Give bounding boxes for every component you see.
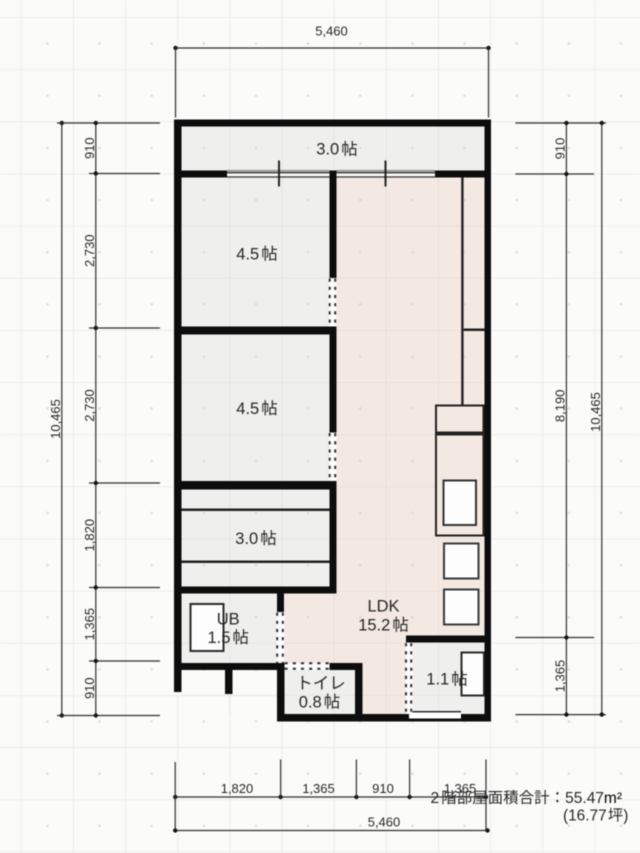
svg-text:(16.77: (16.77 — [563, 808, 607, 825]
svg-text:5,460: 5,460 — [315, 24, 348, 39]
svg-text:4.5: 4.5 — [236, 246, 259, 264]
svg-text:1,365: 1,365 — [82, 608, 97, 641]
svg-text:4.5: 4.5 — [236, 400, 259, 418]
svg-text:1,365: 1,365 — [553, 660, 568, 693]
svg-text:2,730: 2,730 — [82, 234, 97, 267]
svg-text:1,365: 1,365 — [444, 781, 477, 796]
svg-text:): ) — [623, 808, 628, 825]
svg-text:5,460: 5,460 — [368, 815, 401, 830]
svg-text:8,190: 8,190 — [553, 390, 568, 423]
svg-text:2,730: 2,730 — [82, 389, 97, 422]
svg-text:LDK: LDK — [367, 598, 399, 616]
svg-text:910: 910 — [372, 781, 394, 796]
svg-text:10,465: 10,465 — [588, 392, 603, 432]
svg-text:910: 910 — [82, 137, 97, 159]
svg-text:3.0: 3.0 — [235, 530, 258, 548]
svg-text:1,365: 1,365 — [302, 781, 335, 796]
svg-text:UB: UB — [217, 611, 240, 629]
svg-text:15.2: 15.2 — [358, 617, 390, 635]
svg-text:1.1: 1.1 — [426, 671, 449, 689]
svg-text:0.8: 0.8 — [299, 694, 322, 712]
svg-text:1.5: 1.5 — [207, 629, 230, 647]
svg-text:10,465: 10,465 — [48, 399, 63, 439]
svg-text:1,820: 1,820 — [221, 781, 254, 796]
svg-text:910: 910 — [82, 677, 97, 699]
svg-text:55.47: 55.47 — [565, 790, 604, 807]
svg-text:3.0: 3.0 — [316, 141, 339, 159]
svg-text:m²: m² — [604, 790, 622, 807]
svg-text:1,820: 1,820 — [82, 519, 97, 552]
svg-text:2: 2 — [431, 790, 440, 807]
svg-text:910: 910 — [553, 138, 568, 160]
